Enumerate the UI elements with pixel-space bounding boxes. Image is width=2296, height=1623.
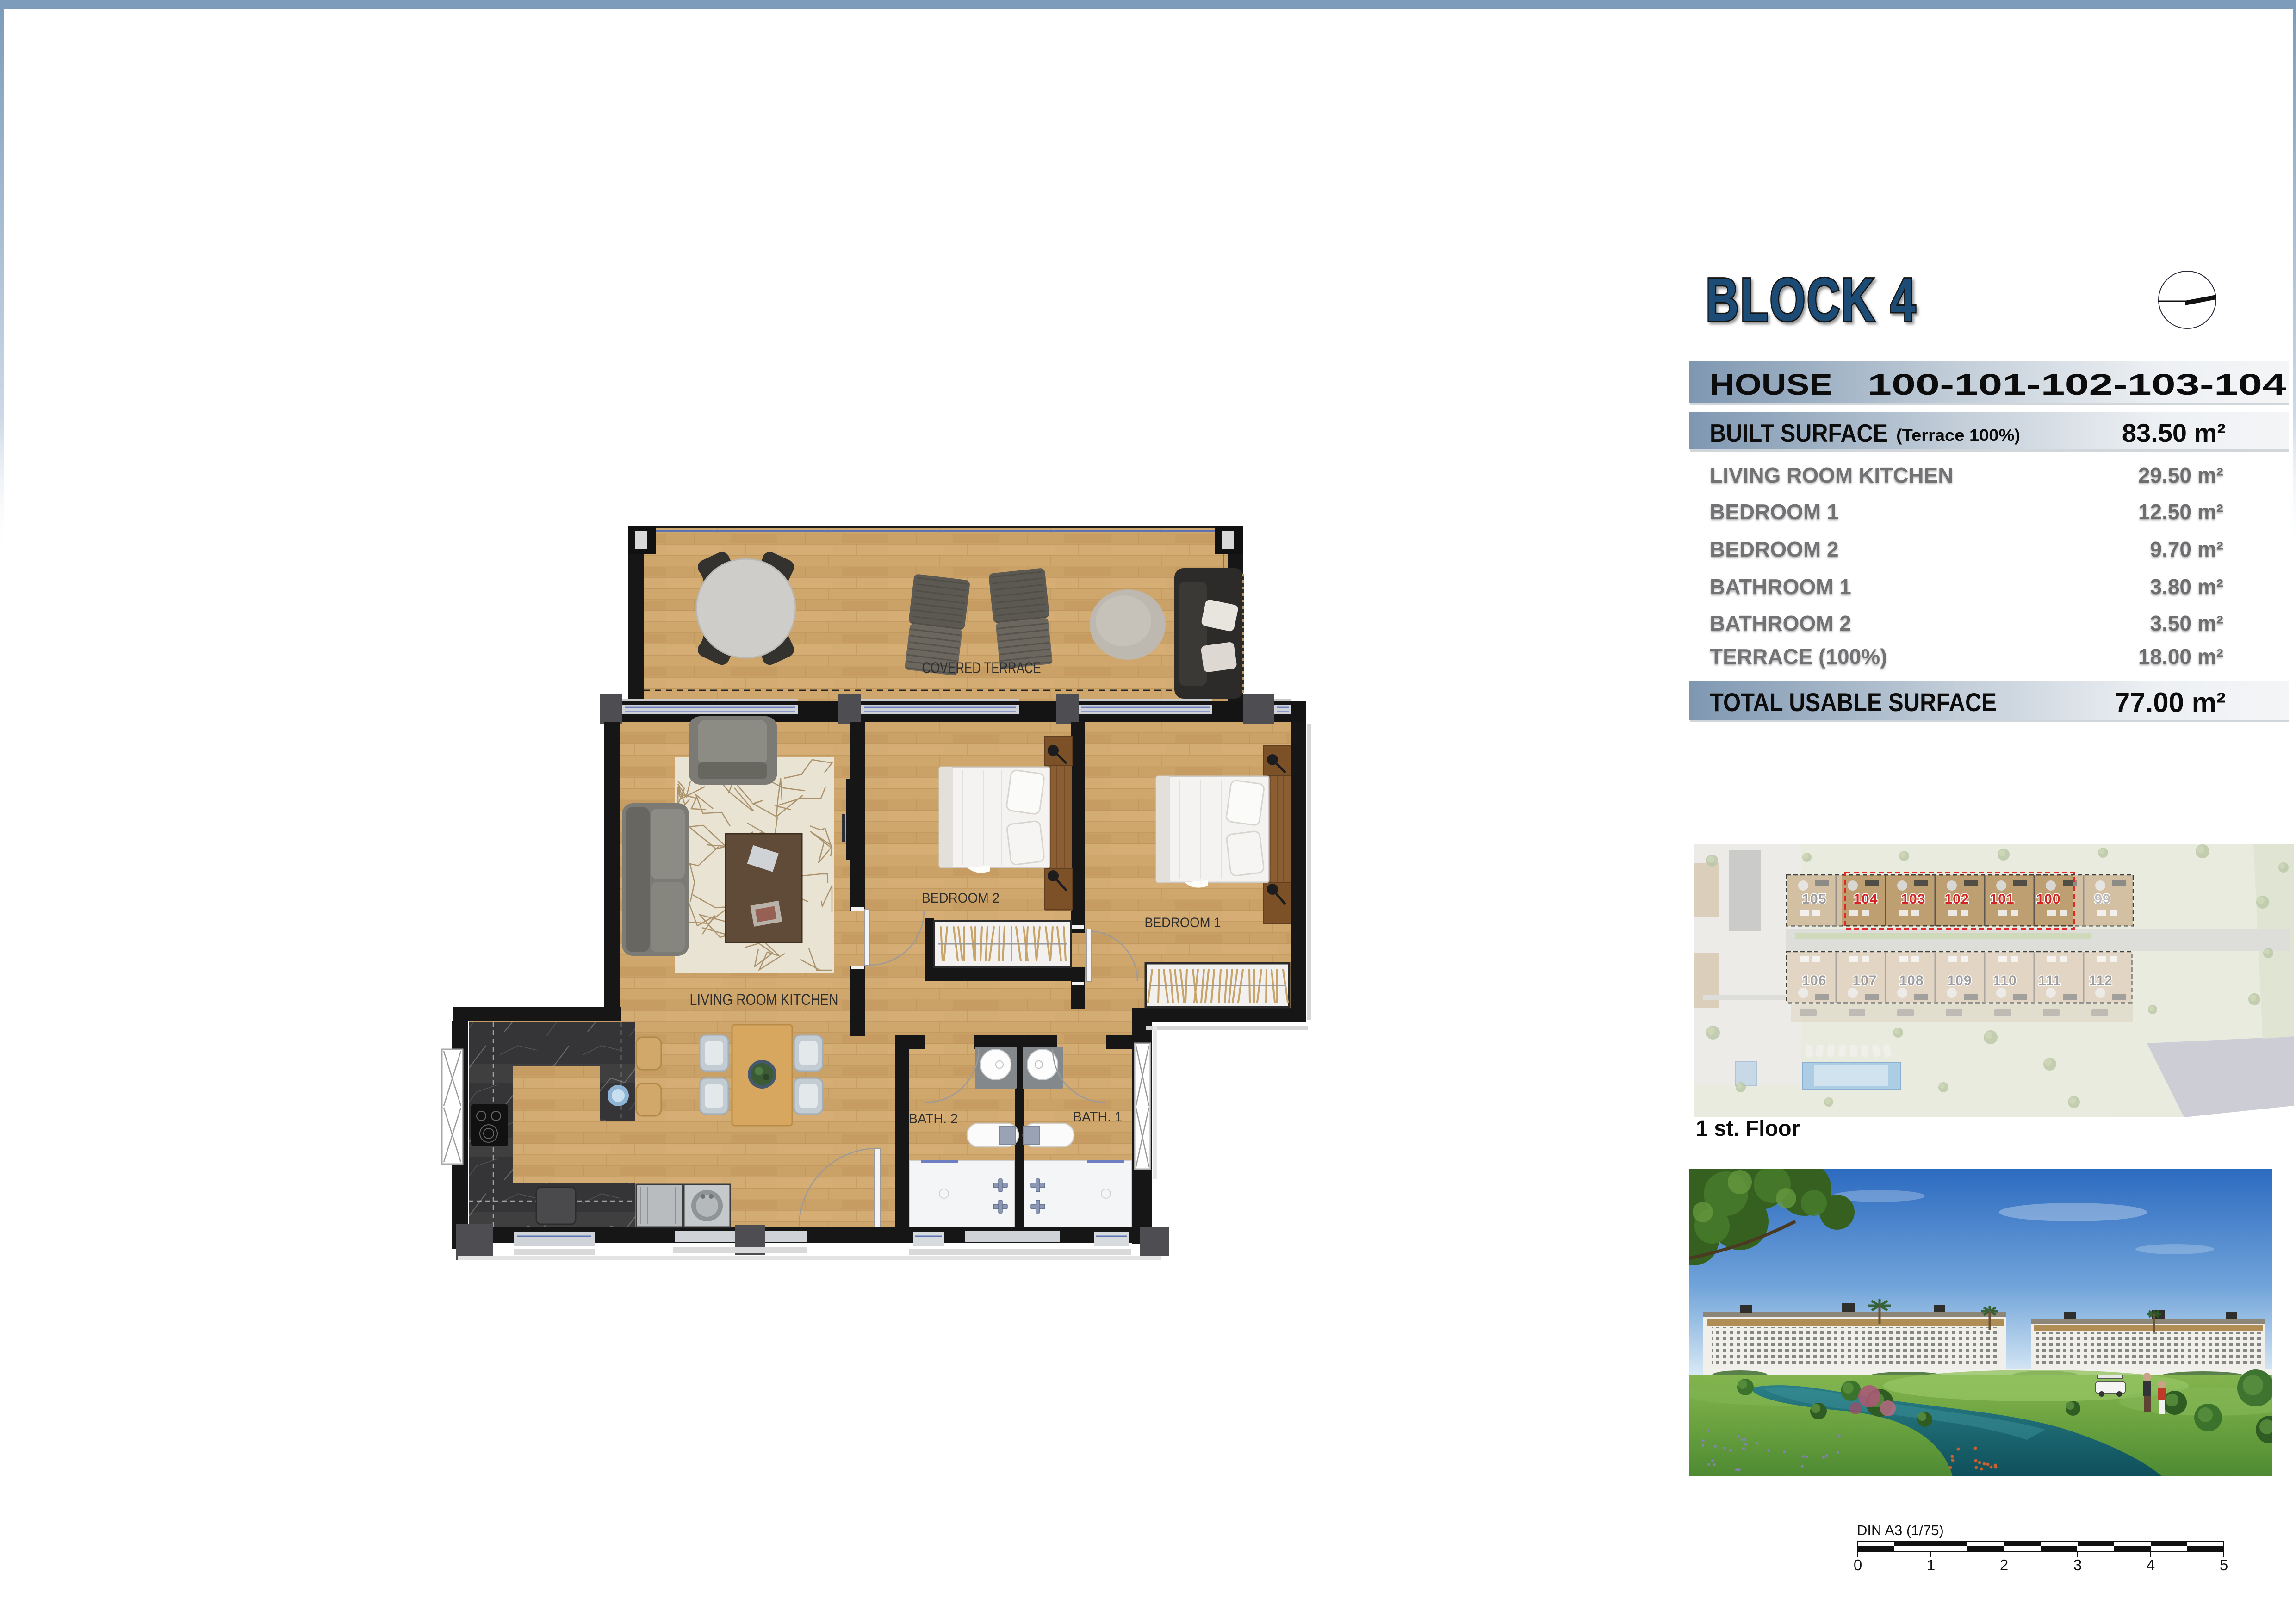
svg-text:103: 103 bbox=[1901, 892, 1925, 907]
svg-text:LIVING ROOM KITCHEN: LIVING ROOM KITCHEN bbox=[1710, 463, 1953, 487]
svg-text:102: 102 bbox=[1944, 892, 1969, 907]
svg-text:18.00 m²: 18.00 m² bbox=[2138, 644, 2223, 669]
svg-text:HOUSE: HOUSE bbox=[1710, 368, 1832, 401]
svg-text:100-101-102-103-104: 100-101-102-103-104 bbox=[1868, 368, 2287, 401]
svg-text:2: 2 bbox=[2000, 1556, 2008, 1573]
svg-text:BEDROOM 2: BEDROOM 2 bbox=[1710, 537, 1839, 561]
svg-text:106: 106 bbox=[1802, 973, 1826, 988]
svg-text:108: 108 bbox=[1899, 973, 1924, 988]
svg-text:99: 99 bbox=[2094, 892, 2110, 907]
svg-text:BEDROOM 2: BEDROOM 2 bbox=[922, 891, 999, 906]
svg-text:DIN A3 (1/75): DIN A3 (1/75) bbox=[1857, 1522, 1944, 1538]
svg-text:BATH. 2: BATH. 2 bbox=[909, 1111, 958, 1127]
svg-text:LIVING ROOM KITCHEN: LIVING ROOM KITCHEN bbox=[690, 991, 838, 1009]
svg-text:1: 1 bbox=[1927, 1556, 1935, 1573]
svg-text:1 st. Floor: 1 st. Floor bbox=[1696, 1116, 1800, 1141]
svg-text:104: 104 bbox=[1853, 892, 1878, 907]
svg-text:BEDROOM 1: BEDROOM 1 bbox=[1710, 500, 1839, 524]
svg-text:5: 5 bbox=[2220, 1556, 2228, 1573]
svg-text:TERRACE (100%): TERRACE (100%) bbox=[1710, 644, 1887, 669]
svg-text:3: 3 bbox=[2073, 1556, 2082, 1573]
svg-text:29.50 m²: 29.50 m² bbox=[2138, 463, 2223, 487]
svg-text:BLOCK 4: BLOCK 4 bbox=[1706, 266, 1917, 334]
svg-text:TOTAL USABLE SURFACE: TOTAL USABLE SURFACE bbox=[1710, 688, 1997, 717]
svg-text:112: 112 bbox=[2089, 973, 2112, 988]
svg-text:111: 111 bbox=[2038, 973, 2061, 988]
svg-text:110: 110 bbox=[1993, 973, 2017, 988]
svg-text:BATHROOM 1: BATHROOM 1 bbox=[1710, 575, 1851, 599]
svg-text:77.00 m²: 77.00 m² bbox=[2115, 687, 2226, 718]
svg-text:109: 109 bbox=[1947, 973, 1972, 988]
svg-text:101: 101 bbox=[1990, 892, 2014, 907]
svg-text:105: 105 bbox=[1802, 892, 1826, 907]
svg-text:83.50 m²: 83.50 m² bbox=[2122, 418, 2226, 447]
svg-text:0: 0 bbox=[1854, 1556, 1862, 1573]
svg-text:3.50 m²: 3.50 m² bbox=[2150, 611, 2223, 635]
svg-text:BATHROOM 2: BATHROOM 2 bbox=[1710, 611, 1851, 635]
svg-text:COVERED TERRACE: COVERED TERRACE bbox=[922, 659, 1041, 677]
svg-text:12.50 m²: 12.50 m² bbox=[2138, 500, 2223, 524]
svg-text:9.70 m²: 9.70 m² bbox=[2150, 537, 2223, 561]
svg-text:3.80 m²: 3.80 m² bbox=[2150, 575, 2223, 599]
svg-text:BUILT SURFACE: BUILT SURFACE bbox=[1710, 419, 1888, 447]
svg-text:4: 4 bbox=[2147, 1556, 2155, 1573]
svg-text:107: 107 bbox=[1852, 973, 1877, 988]
svg-text:(Terrace 100%): (Terrace 100%) bbox=[1896, 426, 2020, 445]
svg-text:100: 100 bbox=[2036, 892, 2060, 907]
svg-text:BEDROOM 1: BEDROOM 1 bbox=[1145, 915, 1221, 930]
svg-text:BATH. 1: BATH. 1 bbox=[1073, 1109, 1122, 1125]
